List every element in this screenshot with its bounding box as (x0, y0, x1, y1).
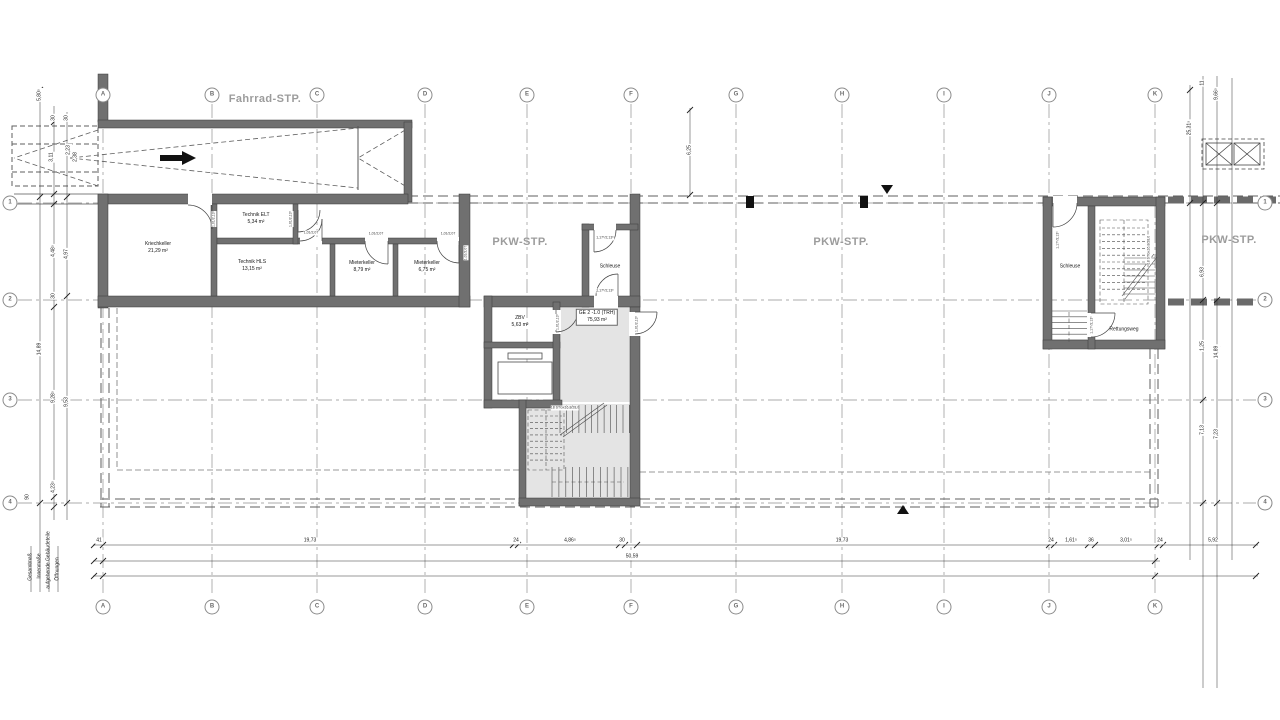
room-label: Technik ELT 5,34 m² (242, 212, 269, 227)
dimension-text: 30 (50, 114, 57, 122)
grid-bubble-C-top: C (310, 88, 325, 103)
grid-bubble-F-bottom: F (624, 600, 639, 615)
grid-bubble-I-bottom: I (937, 600, 952, 615)
grid-bubble-3-left: 3 (3, 393, 18, 408)
grid-bubble-E-bottom: E (520, 600, 535, 615)
grid-bubble-I-top: I (937, 88, 952, 103)
grid-bubble-4-left: 4 (3, 496, 18, 511)
dimension-text: 4,86⁵ (563, 537, 577, 544)
stair-note: 18 STGx16,8/28,0 (1146, 236, 1151, 264)
grid-bubble-F-top: F (624, 88, 639, 103)
grid-bubble-G-top: G (729, 88, 744, 103)
room-label: Schleuse (1060, 263, 1081, 270)
grid-bubble-K-top: K (1148, 88, 1163, 103)
dimension-text: 11 (1199, 79, 1206, 86)
room-label: Technik HLS 13,15 m² (238, 259, 266, 274)
dimension-text: 9,66⁵ (1213, 87, 1220, 101)
door-tag: 1,17⁵/2,13⁵ (596, 288, 614, 293)
dimension-text: 6,25 (686, 144, 693, 156)
grid-bubble-H-top: H (835, 88, 850, 103)
grid-bubble-H-bottom: H (835, 600, 850, 615)
dimension-text: 50,59 (625, 553, 640, 560)
dimension-text: 9,28⁵ (50, 390, 57, 404)
dimension-text: 24 (1156, 537, 1164, 544)
room-label: ZBV 5,63 m² (512, 315, 529, 330)
dimension-text: 3,01⁵ (1119, 537, 1133, 544)
label-layer: AABBCCDDEEFFGGHHIIJJKK11223344Fahrrad-ST… (0, 0, 1280, 720)
door-tag: 1,01/2,07 (463, 246, 468, 261)
room-label: Schleuse (600, 263, 621, 270)
dimension-text: 1,25 (1199, 340, 1206, 352)
floor-plan-canvas: AABBCCDDEEFFGGHHIIJJKK11223344Fahrrad-ST… (0, 0, 1280, 720)
area-label: PKW-STP. (1201, 233, 1256, 249)
dimension-text: 36 (1087, 537, 1095, 544)
grid-bubble-J-bottom: J (1042, 600, 1057, 615)
grid-bubble-G-bottom: G (729, 600, 744, 615)
grid-bubble-E-top: E (520, 88, 535, 103)
dimension-text: 6,93 (1199, 266, 1206, 278)
area-label: PKW-STP. (813, 235, 868, 251)
door-tag: 1,01/2,13⁵ (555, 314, 560, 330)
dimension-text: 4,97 (63, 248, 70, 260)
grid-bubble-D-top: D (418, 88, 433, 103)
dimension-text: 4,48⁵ (50, 244, 57, 258)
door-tag: 1,01/2,13⁵ (288, 211, 293, 227)
door-tag: 1,01/2,07 (304, 230, 319, 235)
dimension-text: 5,80⁵ (36, 88, 43, 102)
area-label: Fahrrad-STP. (229, 92, 301, 108)
dimension-text: 5,92 (1207, 537, 1219, 544)
dimension-text: 41 (95, 537, 103, 544)
room-label: GE 2 -1.0 (TRH) 75,93 m² (576, 309, 618, 326)
dimension-text: 7,13 (1199, 424, 1206, 436)
door-tag: 1,17⁵/2,13⁵ (596, 235, 614, 240)
area-label: PKW-STP. (492, 235, 547, 251)
grid-bubble-4-right: 4 (1258, 496, 1273, 511)
grid-bubble-2-right: 2 (1258, 293, 1273, 308)
dimension-text: 3,11 (48, 151, 55, 162)
dimension-text: 9,53 (63, 396, 70, 408)
chain-label: Öffnungen (54, 557, 61, 580)
dimension-text: 24 (512, 537, 520, 544)
chain-label: Gesamtmaß (27, 553, 34, 581)
dimension-text: 30 (50, 292, 57, 300)
grid-bubble-D-bottom: D (418, 600, 433, 615)
room-label: Kriechkeller 21,29 m² (145, 241, 171, 256)
room-label: Mieterkeller 6,75 m² (414, 260, 440, 275)
chain-label: aufgehende Gebäudeteile (45, 531, 52, 589)
dimension-text: 4,23⁵ (50, 480, 57, 494)
grid-bubble-C-bottom: C (310, 600, 325, 615)
grid-bubble-3-right: 3 (1258, 393, 1273, 408)
dimension-text: 30 (63, 114, 70, 122)
door-tag: 1,01/2,13⁵ (211, 211, 216, 227)
grid-bubble-J-top: J (1042, 88, 1057, 103)
door-tag: 1,17⁵/2,13⁵ (1055, 231, 1060, 249)
dimension-text: 1,61⁵ (1064, 537, 1078, 544)
grid-bubble-A-top: A (96, 88, 111, 103)
dimension-text: 2,38 (72, 151, 79, 163)
door-tag: 1,17⁵/2,13⁵ (1089, 316, 1094, 334)
room-label: Mieterkeller 8,79 m² (349, 260, 375, 275)
dimension-text: 19,73 (303, 537, 318, 544)
grid-bubble-B-top: B (205, 88, 220, 103)
door-tag: 1,01/2,07 (441, 231, 456, 236)
dimension-text: 24 (1047, 537, 1055, 544)
grid-bubble-2-left: 2 (3, 293, 18, 308)
dimension-text: 7,23 (1213, 428, 1220, 440)
door-tag: 1,01/2,13⁵ (634, 316, 639, 332)
door-tag: 1,01/2,07 (369, 231, 384, 236)
grid-bubble-B-bottom: B (205, 600, 220, 615)
dimension-text: 25,31⁵ (1186, 120, 1193, 137)
grid-bubble-K-bottom: K (1148, 600, 1163, 615)
grid-bubble-A-bottom: A (96, 600, 111, 615)
dimension-text: 14,89 (1213, 345, 1220, 360)
stair-note: 18 STGx16,8/28,0 (551, 405, 579, 410)
dimension-text: 90 (24, 493, 31, 501)
dimension-text: 30 (618, 537, 626, 544)
grid-bubble-1-left: 1 (3, 196, 18, 211)
chain-label: Innenmaße (36, 553, 43, 578)
dimension-text: 19,73 (835, 537, 850, 544)
grid-bubble-1-right: 1 (1258, 196, 1273, 211)
dimension-text: 14,89 (36, 342, 43, 357)
room-label: Rettungsweg (1109, 326, 1138, 333)
